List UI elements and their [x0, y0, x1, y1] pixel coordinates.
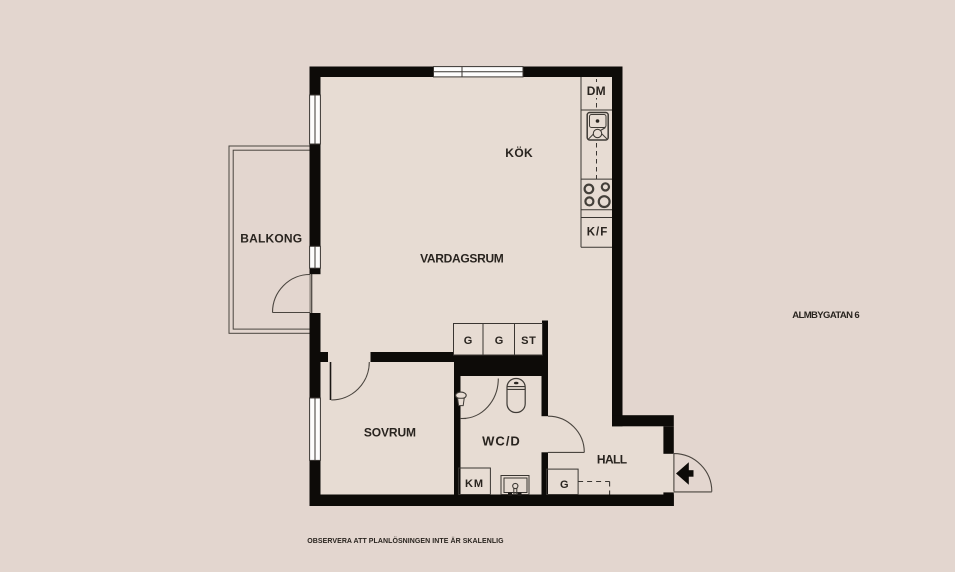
svg-text:G: G	[560, 479, 569, 491]
svg-text:VARDAGSRUM: VARDAGSRUM	[420, 252, 504, 266]
svg-text:HALL: HALL	[597, 453, 627, 467]
svg-text:OBSERVERA ATT PLANLÖSNINGEN IN: OBSERVERA ATT PLANLÖSNINGEN INTE ÄR SKAL…	[307, 536, 504, 545]
svg-text:KM: KM	[465, 478, 484, 490]
svg-text:G: G	[495, 335, 504, 347]
svg-text:WC/D: WC/D	[482, 433, 521, 448]
svg-text:DM: DM	[587, 84, 606, 98]
svg-text:ST: ST	[521, 335, 536, 347]
svg-text:K/F: K/F	[587, 227, 609, 239]
svg-text:BALKONG: BALKONG	[240, 232, 302, 246]
svg-text:SOVRUM: SOVRUM	[364, 425, 416, 439]
svg-text:KÖK: KÖK	[505, 145, 533, 160]
svg-text:ALMBYGATAN 6: ALMBYGATAN 6	[792, 310, 859, 321]
svg-text:G: G	[464, 335, 473, 347]
